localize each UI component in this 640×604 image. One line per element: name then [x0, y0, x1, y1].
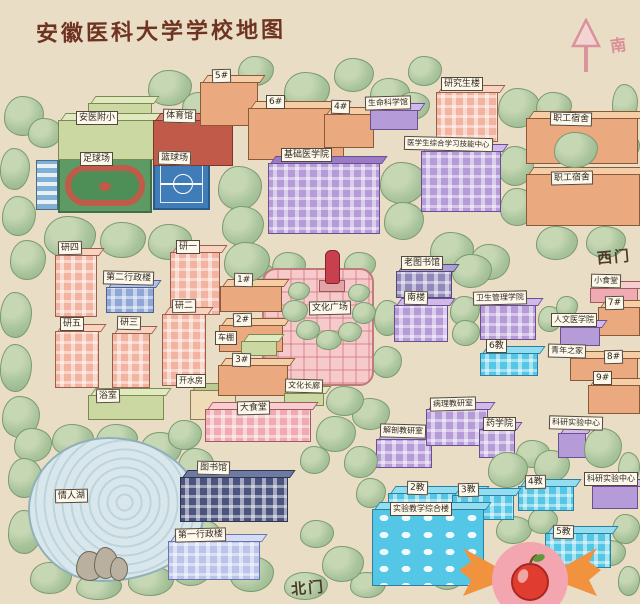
bld4-facade	[324, 114, 374, 148]
compass-south-label: 南	[608, 31, 627, 57]
tree	[372, 346, 402, 378]
jiao4-label: 4教	[525, 475, 546, 490]
tree	[452, 320, 480, 346]
campus-map: 安徽医科大学学校地图 南 安医附小体育馆足球场篮球场5#6#4#生命科学馆研究生…	[0, 0, 640, 604]
youth-home-label: 青年之家	[548, 344, 586, 359]
tree	[618, 566, 640, 596]
bld9-facade	[588, 385, 640, 414]
staff-dorm-2-label: 职工宿舍	[551, 170, 593, 185]
south-bld-label: 南楼	[404, 291, 428, 306]
tree	[218, 166, 262, 210]
south-bld-facade	[394, 305, 448, 342]
bld1	[220, 286, 282, 312]
skill-center-facade	[421, 151, 501, 212]
tree	[408, 56, 442, 86]
tree	[28, 118, 62, 148]
jiao6-label: 6教	[486, 339, 507, 353]
research-center-1	[558, 433, 586, 458]
bike-shed-label: 车棚	[215, 331, 237, 345]
football-field	[58, 158, 152, 213]
research-center-2	[592, 486, 638, 509]
yan3-facade	[112, 333, 150, 388]
research-center-2-facade	[592, 486, 638, 509]
anatomy-facade	[376, 439, 432, 468]
football-field-label: 足球场	[80, 152, 113, 166]
yan3-label: 研三	[117, 316, 141, 331]
grad-bld-label: 研究生楼	[441, 77, 483, 91]
admin1-label: 第一行政楼	[175, 527, 226, 542]
admin2	[106, 287, 154, 313]
tree	[380, 162, 426, 204]
health-mgmt-label: 卫生管理学院	[473, 290, 527, 305]
canteen-big-label: 大食堂	[237, 401, 270, 416]
tree	[0, 148, 30, 190]
west-gate-label: 西门	[596, 245, 632, 269]
basic-medical-label: 基础医学院	[281, 148, 332, 162]
health-mgmt	[480, 305, 536, 340]
staff-dorm-1-label: 职工宿舍	[550, 111, 592, 126]
bld9-label: 9#	[593, 371, 612, 385]
life-science-label: 生命科学馆	[365, 95, 411, 110]
yan1-label: 研一	[176, 240, 200, 254]
health-mgmt-facade	[480, 305, 536, 340]
yan4-facade	[55, 255, 97, 317]
yan5-facade	[55, 331, 99, 388]
grad-bld	[436, 92, 498, 142]
tree	[344, 446, 378, 478]
library-label: 图书馆	[197, 461, 230, 476]
bld2-label: 2#	[233, 313, 253, 327]
jiao4-facade	[518, 486, 574, 511]
admin2-facade	[106, 287, 154, 313]
culture-corridor-label: 文化长廊	[285, 379, 323, 394]
court-center-circle	[173, 174, 193, 194]
bld1-facade	[220, 286, 282, 312]
yan2-label: 研二	[172, 299, 196, 314]
culture-square-label: 文化广场	[309, 300, 351, 315]
tree	[316, 416, 356, 452]
lake-rocks	[76, 545, 126, 579]
small-canteen-label: 小食堂	[591, 274, 621, 289]
library	[180, 477, 288, 522]
tree	[300, 520, 334, 548]
field-center-mark	[99, 182, 111, 191]
tree	[2, 196, 36, 236]
bld3-facade	[218, 365, 288, 396]
tree	[334, 58, 374, 92]
admin2-label: 第二行政楼	[103, 270, 154, 285]
jiao3-label: 3教	[458, 483, 479, 498]
bld3-label: 3#	[232, 353, 252, 367]
skill-center-label: 医学生综合学习技能中心	[404, 136, 493, 152]
gym-label: 体育馆	[163, 109, 196, 124]
tree	[384, 202, 424, 240]
jiao2-label: 2教	[407, 481, 428, 496]
bld6-label: 6#	[266, 95, 285, 109]
tree	[584, 428, 622, 468]
monument-statue	[319, 250, 343, 292]
bld1-label: 1#	[234, 273, 254, 287]
tree	[452, 254, 492, 288]
tree	[0, 344, 32, 392]
bld4-label: 4#	[331, 100, 351, 114]
admin1	[168, 541, 260, 580]
anatomy	[376, 439, 432, 468]
jiao6-facade	[480, 353, 538, 376]
tree	[100, 222, 146, 258]
bld9	[588, 385, 640, 414]
stadium-stands	[36, 160, 58, 210]
library-facade	[180, 477, 288, 522]
life-science	[370, 110, 418, 130]
bathhouse-label: 浴室	[96, 389, 120, 404]
bld8-label: 8#	[604, 350, 624, 364]
yan4-label: 研四	[58, 241, 82, 256]
jiao4	[518, 486, 574, 511]
grad-bld-facade	[436, 92, 498, 142]
anatomy-label: 解剖教研室	[380, 423, 426, 438]
research-center-2-label: 科研实验中心	[584, 472, 638, 486]
bld7-label: 7#	[605, 296, 625, 310]
lovers-lake-label: 情人湖	[55, 489, 88, 504]
yan5-label: 研五	[60, 317, 84, 331]
basic-medical	[268, 163, 380, 234]
yan4	[55, 255, 97, 317]
tree	[536, 226, 578, 260]
bld4	[324, 114, 374, 148]
yan5	[55, 331, 99, 388]
tree	[14, 428, 52, 462]
yan3	[112, 333, 150, 388]
tree	[0, 292, 32, 338]
north-arrow-icon	[570, 18, 604, 76]
north-gate-label: 北门	[290, 576, 326, 600]
bld3	[218, 365, 288, 396]
research-center-1-facade	[558, 433, 586, 458]
map-title: 安徽医科大学学校地图	[36, 12, 287, 48]
research-center-1-label: 科研实验中心	[549, 415, 603, 430]
exp-teaching-label: 实验教学综合楼	[390, 502, 452, 516]
admin1-facade	[168, 541, 260, 580]
pathology-label: 病理教研室	[430, 396, 476, 411]
tree	[222, 206, 264, 246]
rock	[110, 557, 128, 581]
old-library-label: 老图书馆	[401, 256, 443, 270]
statue-column	[325, 250, 340, 284]
fuxiao-label: 安医附小	[76, 111, 118, 125]
hot-water-label: 开水房	[176, 374, 206, 388]
tree	[10, 240, 46, 280]
basic-medical-facade	[268, 163, 380, 234]
bld5-label: 5#	[212, 69, 232, 83]
compass: 南	[570, 18, 636, 78]
pharmacy-label: 药学院	[483, 417, 516, 431]
candy-watermark-icon	[455, 540, 605, 604]
south-bld	[394, 305, 448, 342]
jiao5-label: 5教	[553, 525, 574, 540]
tree	[168, 420, 202, 450]
life-science-facade	[370, 110, 418, 130]
skill-center	[421, 151, 501, 212]
basketball-court-label: 篮球场	[158, 151, 191, 166]
jiao6	[480, 353, 538, 376]
humanities-label: 人文医学院	[551, 313, 597, 327]
